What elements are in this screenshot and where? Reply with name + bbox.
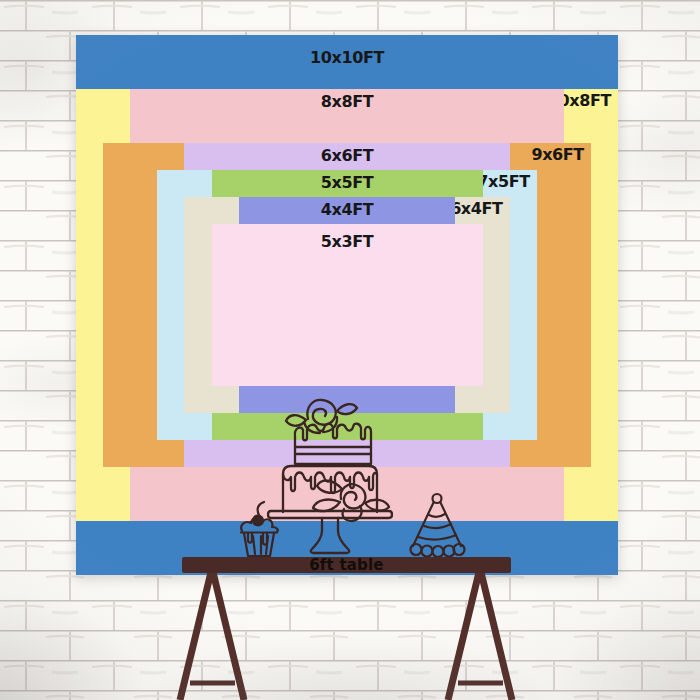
rose-top-icon [307, 400, 335, 425]
cherry-stem-icon [258, 502, 264, 515]
table-size-label: 6ft table [309, 557, 384, 573]
decorations [0, 0, 700, 700]
cake-stand-icon [268, 511, 392, 518]
table-top: 6ft table [182, 557, 511, 573]
tiered-cake-illustration [268, 400, 392, 553]
party-hat-illustration [411, 494, 465, 557]
table-legs [180, 568, 512, 700]
